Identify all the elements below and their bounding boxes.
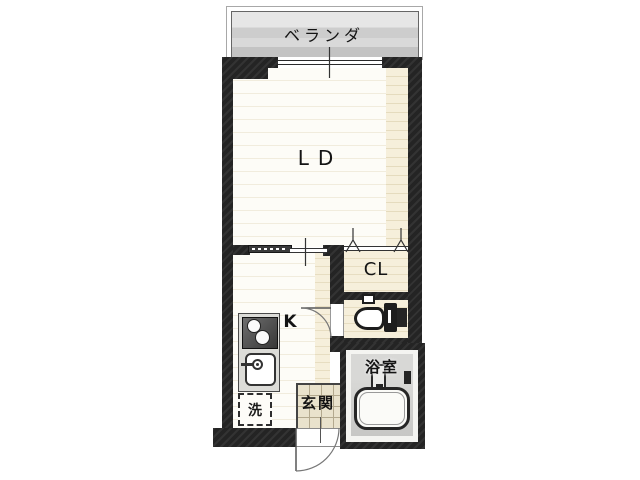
toilet-door-opening: [330, 304, 344, 336]
closet-door-track: [344, 246, 408, 251]
floor-plan: ベランダ 洗: [0, 0, 640, 480]
wall-hall-upper: [330, 246, 344, 304]
kitchen-counter-hatch: [248, 245, 292, 253]
toilet-unit-side: [397, 308, 407, 327]
counter-dots: [252, 248, 288, 250]
faucet-dot: [256, 363, 259, 366]
toilet-paper-holder-icon: [362, 294, 375, 304]
bathtub-icon: [354, 387, 410, 430]
window-pane-line: [278, 60, 382, 61]
faucet-arm: [241, 363, 253, 366]
living-dining-floor-edge: [386, 68, 408, 247]
wall-closet-toilet: [344, 292, 408, 300]
stove-burner-icon: [255, 330, 270, 345]
living-dining-label: LD: [270, 147, 370, 169]
wall-left: [222, 57, 233, 447]
balcony-label: ベランダ: [256, 27, 392, 45]
sink-icon: [245, 353, 276, 386]
bathroom-label: 浴室: [351, 359, 413, 376]
wall-right: [408, 57, 422, 347]
washing-machine-box: 洗: [238, 393, 272, 426]
closet-label: CL: [344, 260, 408, 280]
entrance-opening: [296, 428, 340, 447]
bath-drain-icon: [376, 384, 383, 389]
window-pane-line: [278, 64, 382, 65]
entrance-label: 玄関: [294, 395, 342, 412]
balcony-window: [278, 57, 382, 68]
toilet-icon: [354, 307, 385, 330]
toilet-tank-slit: [388, 310, 391, 323]
laundry-label: 洗: [248, 400, 262, 420]
wall-bottom: [213, 428, 296, 447]
ldk-opening-track: [290, 248, 327, 253]
bathtub-inner-line: [359, 392, 405, 425]
kitchen-label: K: [262, 313, 318, 332]
